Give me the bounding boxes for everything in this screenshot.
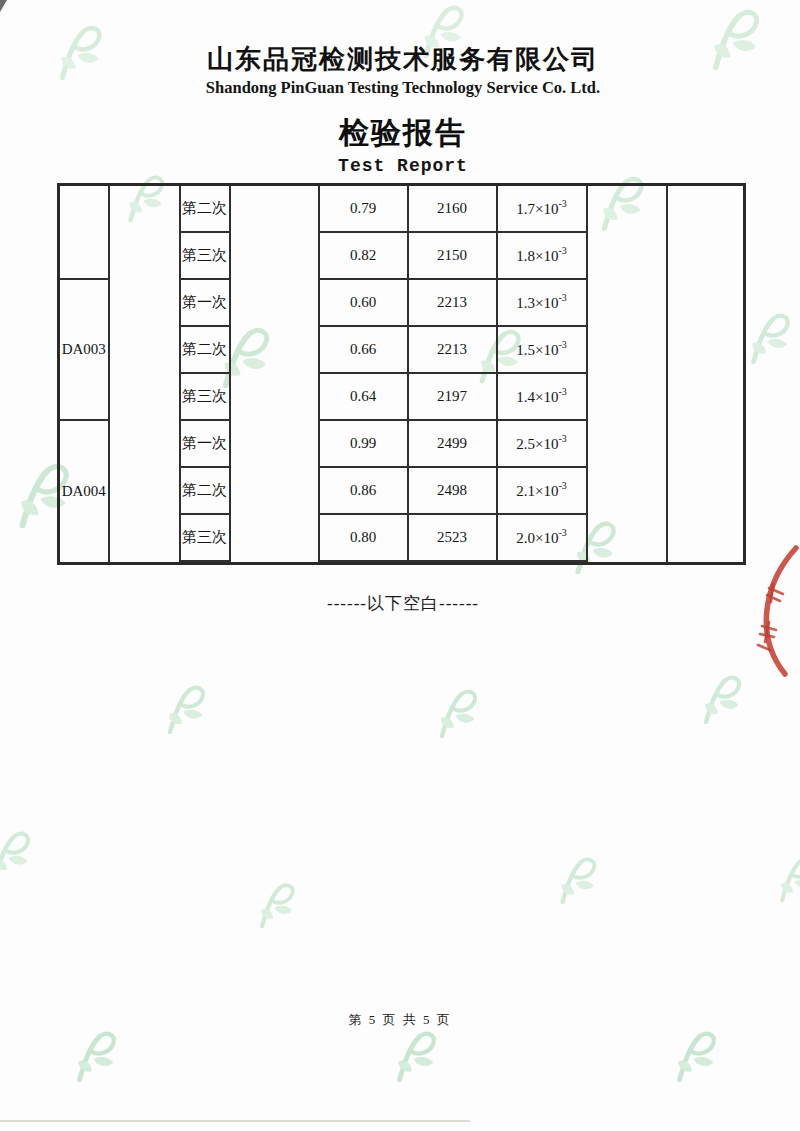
value-cell: 0.86 [319, 467, 408, 514]
report-title-en: Test Report [3, 156, 800, 177]
page-number: 第 5 页 共 5 页 [0, 1011, 800, 1029]
sample-id-cell: DA003 [59, 279, 109, 420]
value-cell: 0.82 [319, 232, 408, 279]
trial-cell: 第二次 [180, 326, 230, 373]
leaf-logo-watermark-icon [252, 882, 298, 928]
test-report-page: 山东品冠检测技术服务有限公司 Shandong PinGuan Testing … [0, 0, 800, 1131]
leaf-logo-watermark-icon [68, 1030, 120, 1082]
spacer-cell [497, 561, 587, 564]
sci-value-cell: 1.4×10-3 [497, 373, 587, 420]
scan-edge-line [0, 1120, 470, 1122]
spacer-cell [180, 561, 230, 564]
spacer-cell [408, 561, 497, 564]
trial-cell: 第三次 [180, 373, 230, 420]
trial-cell: 第三次 [180, 514, 230, 561]
value-cell: 2213 [408, 326, 497, 373]
value-cell: 0.60 [319, 279, 408, 326]
trial-cell: 第二次 [180, 467, 230, 514]
value-cell: 2213 [408, 279, 497, 326]
trial-cell: 第三次 [180, 232, 230, 279]
value-cell: 0.64 [319, 373, 408, 420]
value-cell: 2498 [408, 467, 497, 514]
sci-value-cell: 2.5×10-3 [497, 420, 587, 467]
value-cell: 2523 [408, 514, 497, 561]
table-row: 第二次 0.79 2160 1.7×10-3 [59, 185, 745, 232]
leaf-logo-watermark-icon [0, 830, 34, 880]
value-cell: 0.66 [319, 326, 408, 373]
report-title-cn: 检验报告 [3, 116, 800, 150]
sample-id-cell: DA004 [59, 420, 109, 564]
merged-empty-cell [667, 185, 745, 564]
sample-id-cell [59, 185, 109, 279]
trial-cell: 第一次 [180, 279, 230, 326]
leaf-logo-watermark-icon [695, 674, 745, 724]
test-results-table: 第二次 0.79 2160 1.7×10-3 第三次 0.82 2150 1.8… [57, 183, 746, 565]
spacer-cell [319, 561, 408, 564]
leaf-logo-watermark-icon [431, 688, 481, 738]
value-cell: 2499 [408, 420, 497, 467]
below-blank-note: ------以下空白------ [3, 592, 800, 615]
value-cell: 2150 [408, 232, 497, 279]
leaf-logo-watermark-icon [668, 1030, 720, 1082]
leaf-logo-watermark-icon [388, 1030, 440, 1082]
sci-value-cell: 1.7×10-3 [497, 185, 587, 232]
sci-value-cell: 2.1×10-3 [497, 467, 587, 514]
value-cell: 0.79 [319, 185, 408, 232]
sci-value-cell: 1.5×10-3 [497, 326, 587, 373]
company-name-en: Shandong PinGuan Testing Technology Serv… [3, 79, 800, 97]
merged-empty-cell [230, 185, 319, 564]
leaf-logo-watermark-icon [772, 856, 800, 902]
sci-value-cell: 2.0×10-3 [497, 514, 587, 561]
merged-empty-cell [109, 185, 180, 564]
sci-value-cell: 1.3×10-3 [497, 279, 587, 326]
company-name-cn: 山东品冠检测技术服务有限公司 [3, 44, 800, 74]
value-cell: 2160 [408, 185, 497, 232]
value-cell: 0.80 [319, 514, 408, 561]
leaf-logo-watermark-icon [159, 684, 209, 734]
leaf-logo-watermark-icon [552, 856, 600, 904]
leaf-logo-watermark-icon [742, 312, 794, 364]
merged-empty-cell [587, 185, 667, 564]
trial-cell: 第二次 [180, 185, 230, 232]
trial-cell: 第一次 [180, 420, 230, 467]
value-cell: 2197 [408, 373, 497, 420]
scan-corner-artifact [0, 0, 7, 12]
sci-value-cell: 1.8×10-3 [497, 232, 587, 279]
value-cell: 0.99 [319, 420, 408, 467]
